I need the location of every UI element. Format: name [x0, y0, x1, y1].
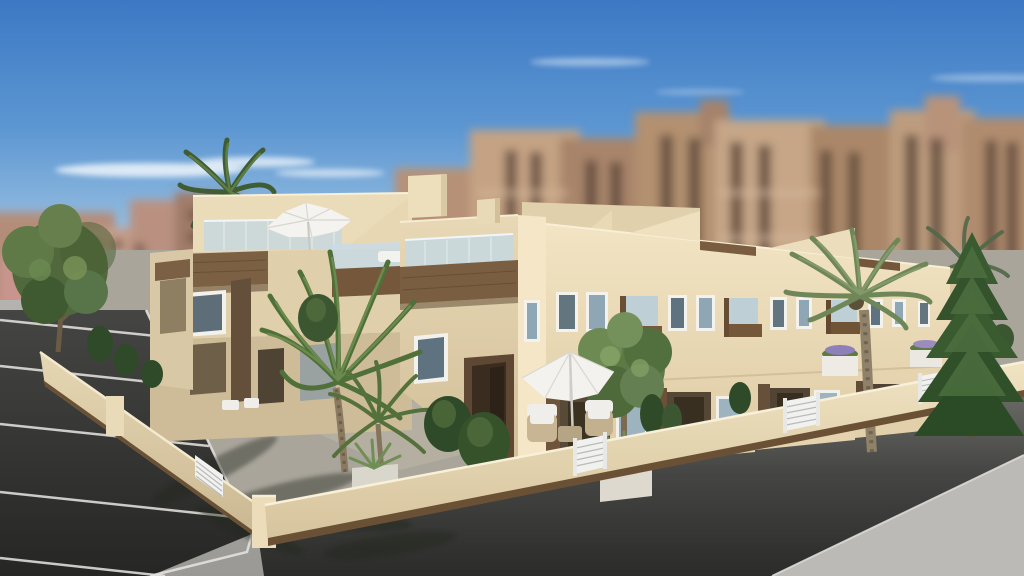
render-canvas: 3D architectural render of a modern crea…: [0, 0, 1024, 576]
wall-pillar: [106, 396, 124, 436]
window: [696, 295, 715, 331]
wicker-armchair: [585, 400, 613, 436]
wicker-armchair: [527, 404, 557, 442]
window: [586, 292, 608, 332]
corner-front-window: [524, 300, 540, 342]
gable-opening: [160, 278, 186, 334]
patio-table: [558, 426, 582, 442]
window: [668, 295, 687, 331]
chimney-shade: [495, 198, 500, 223]
wood-pier: [231, 278, 251, 403]
window: [770, 297, 787, 330]
window: [918, 301, 930, 327]
bulkhead-shade: [441, 174, 447, 216]
corner-window: [414, 333, 448, 384]
corner-fascia-band: [400, 260, 518, 304]
window: [796, 297, 812, 329]
window: [556, 292, 578, 332]
balcony: [724, 298, 762, 337]
flower-planter: [822, 345, 858, 376]
render-image: 3D architectural render of a modern crea…: [0, 0, 1024, 576]
